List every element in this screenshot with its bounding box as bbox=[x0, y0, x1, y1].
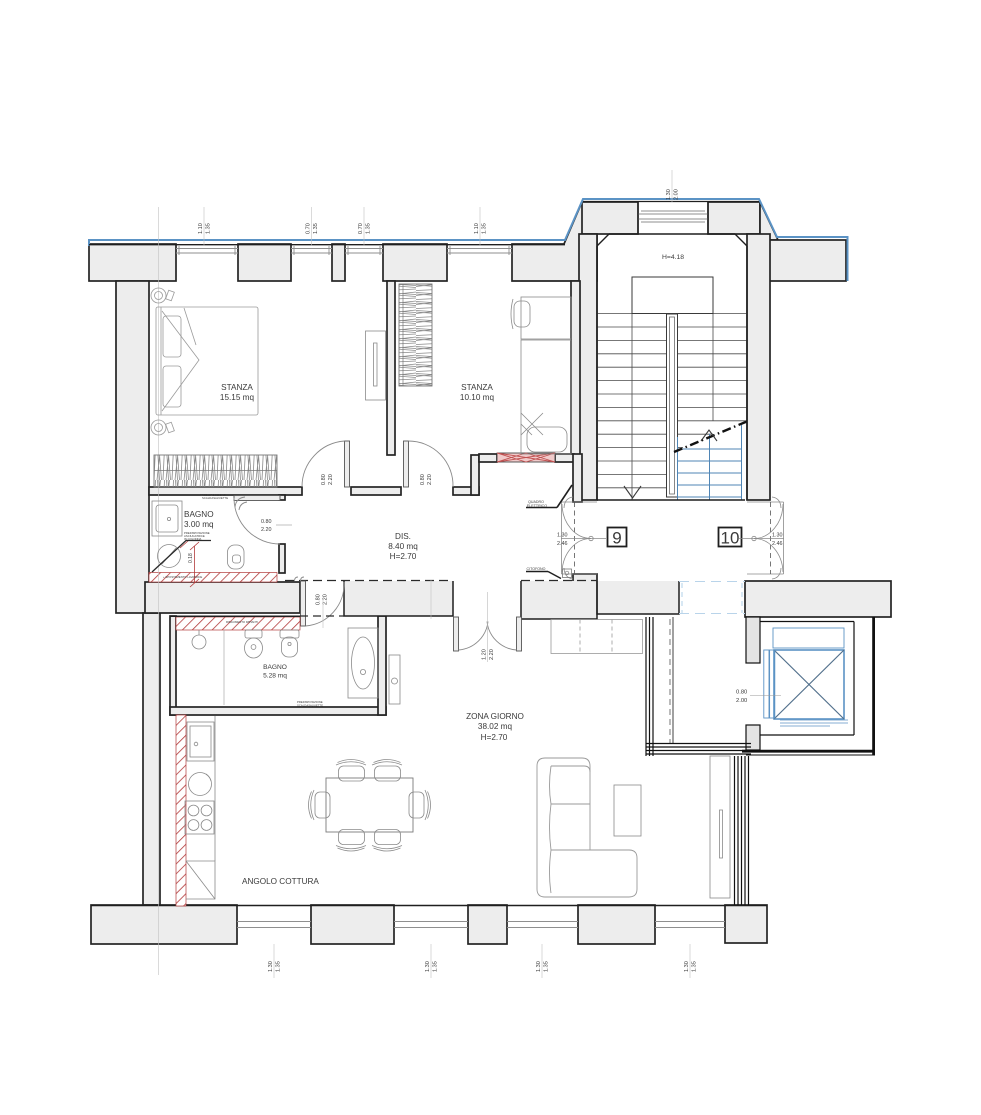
svg-text:2.20: 2.20 bbox=[323, 594, 329, 605]
svg-text:H=2.70: H=2.70 bbox=[481, 733, 508, 742]
svg-text:5.28 mq: 5.28 mq bbox=[263, 673, 287, 680]
svg-text:SCALDASALVIETTE: SCALDASALVIETTE bbox=[297, 704, 323, 708]
svg-text:H=4.18: H=4.18 bbox=[662, 254, 684, 261]
svg-text:0.80: 0.80 bbox=[321, 474, 327, 485]
svg-text:0.18: 0.18 bbox=[188, 553, 194, 563]
svg-text:9: 9 bbox=[612, 529, 621, 548]
svg-text:1.30: 1.30 bbox=[268, 961, 274, 972]
svg-text:1.30: 1.30 bbox=[425, 961, 431, 972]
svg-text:1.35: 1.35 bbox=[433, 961, 439, 972]
svg-text:0.80: 0.80 bbox=[420, 474, 426, 485]
svg-text:H=2.70: H=2.70 bbox=[390, 552, 417, 561]
svg-text:CITOFONO: CITOFONO bbox=[527, 567, 546, 571]
svg-text:2.46: 2.46 bbox=[557, 541, 568, 547]
svg-text:2.20: 2.20 bbox=[261, 527, 272, 533]
svg-text:IN COLONNA: IN COLONNA bbox=[184, 537, 202, 541]
svg-text:ELETTRICO: ELETTRICO bbox=[527, 504, 547, 508]
svg-text:2.46: 2.46 bbox=[772, 541, 783, 547]
svg-text:2.00: 2.00 bbox=[674, 189, 680, 200]
svg-text:RIFACIMENTO IMPIANTI: RIFACIMENTO IMPIANTI bbox=[226, 620, 258, 624]
svg-text:BAGNO: BAGNO bbox=[263, 664, 287, 671]
svg-text:+ SPOSTAMENTO LAVATRICE: + SPOSTAMENTO LAVATRICE bbox=[163, 575, 202, 579]
svg-text:ZONA GIORNO: ZONA GIORNO bbox=[466, 712, 524, 721]
svg-text:1.30: 1.30 bbox=[557, 533, 568, 539]
svg-text:10.10 mq: 10.10 mq bbox=[460, 393, 495, 402]
svg-text:0.70: 0.70 bbox=[358, 223, 364, 234]
svg-text:2.20: 2.20 bbox=[328, 474, 334, 485]
svg-text:1.30: 1.30 bbox=[536, 961, 542, 972]
svg-text:SCALDASALVIETTE: SCALDASALVIETTE bbox=[202, 496, 228, 500]
svg-text:0.70: 0.70 bbox=[306, 223, 312, 234]
svg-text:3.00 mq: 3.00 mq bbox=[184, 520, 214, 529]
svg-text:1.20: 1.20 bbox=[482, 649, 488, 660]
svg-text:1.30: 1.30 bbox=[684, 961, 690, 972]
svg-text:1.35: 1.35 bbox=[482, 223, 488, 234]
svg-text:1.35: 1.35 bbox=[544, 961, 550, 972]
svg-text:1.35: 1.35 bbox=[692, 961, 698, 972]
svg-text:15.15 mq: 15.15 mq bbox=[220, 393, 255, 402]
svg-text:10: 10 bbox=[721, 529, 740, 548]
svg-text:STANZA: STANZA bbox=[221, 383, 253, 392]
svg-text:1.35: 1.35 bbox=[366, 223, 372, 234]
svg-text:ANGOLO COTTURA: ANGOLO COTTURA bbox=[242, 877, 319, 886]
svg-text:0.80: 0.80 bbox=[261, 519, 272, 525]
svg-text:2.00: 2.00 bbox=[736, 698, 747, 704]
svg-text:38.02 mq: 38.02 mq bbox=[478, 722, 513, 731]
svg-text:0.80: 0.80 bbox=[316, 594, 322, 605]
svg-text:2.20: 2.20 bbox=[489, 649, 495, 660]
svg-text:1.10: 1.10 bbox=[198, 223, 204, 234]
svg-text:DIS.: DIS. bbox=[395, 532, 411, 541]
svg-text:BAGNO: BAGNO bbox=[184, 510, 214, 519]
svg-text:STANZA: STANZA bbox=[461, 383, 493, 392]
svg-text:8.40 mq: 8.40 mq bbox=[388, 542, 418, 551]
svg-text:1.30: 1.30 bbox=[666, 189, 672, 200]
svg-text:1.30: 1.30 bbox=[772, 533, 783, 539]
svg-text:1.35: 1.35 bbox=[276, 961, 282, 972]
svg-text:1.35: 1.35 bbox=[206, 223, 212, 234]
svg-text:0.80: 0.80 bbox=[736, 690, 747, 696]
svg-text:2.20: 2.20 bbox=[427, 474, 433, 485]
svg-text:1.10: 1.10 bbox=[474, 223, 480, 234]
svg-text:1.35: 1.35 bbox=[313, 223, 319, 234]
